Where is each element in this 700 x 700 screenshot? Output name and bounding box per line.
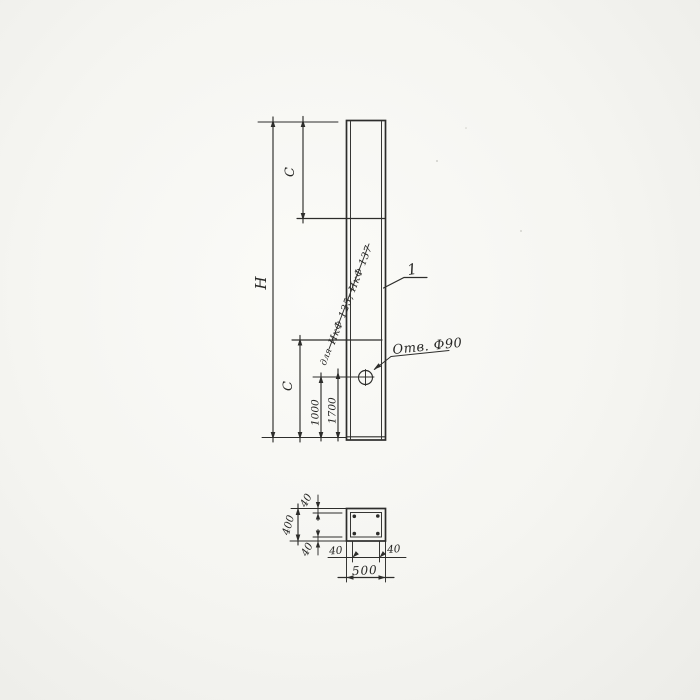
dim-label-400: 400 [280,514,297,538]
arrowhead [336,372,341,380]
rebar-dot [353,532,357,536]
arrowhead [316,531,320,538]
arrowhead [271,120,276,128]
arrowhead [380,551,386,557]
dim-label-500: 500 [351,563,378,578]
scan-speck [465,127,467,129]
arrowhead [316,502,320,509]
arrowhead [316,541,320,548]
dim-label-C-bottom: C [281,381,296,391]
arrowhead [336,432,341,440]
dim-label-cover-bottom: 40 [298,541,315,560]
column-drawing: H C C 1000 1700 ИкФ 125; ИкФ 137 для Отв… [0,0,700,700]
rebar-dot [353,515,357,519]
dim-label-H: H [252,276,270,291]
arrowhead [353,551,359,557]
dim-label-cover-right: 40 [386,543,401,556]
dim-label-1000: 1000 [310,399,322,426]
dim-label-C-top: C [283,167,298,177]
item-leader-line [384,278,428,289]
section-outline [347,509,386,542]
arrowhead [298,432,303,440]
arrowhead [319,432,324,440]
dim-label-cover-top: 40 [297,492,314,511]
rebar-dot [376,532,380,536]
dim-label-cover-left: 40 [328,545,343,558]
hole-callout-text: Отв. Ф90 [392,336,463,358]
note-for-text: для [319,347,335,367]
drawing-sheet: H C C 1000 1700 ИкФ 125; ИкФ 137 для Отв… [0,0,700,700]
arrowhead [301,213,306,221]
scan-speck [436,160,438,162]
arrowhead [271,432,276,440]
arrowhead [298,338,303,346]
section-view: 400 40 40 40 40 500 [280,492,406,582]
elevation-view: H C C 1000 1700 ИкФ 125; ИкФ 137 для Отв… [252,117,463,443]
arrowhead [374,363,382,370]
arrowhead [379,575,386,580]
arrowhead [301,120,306,128]
scan-speck [520,230,522,232]
dim-label-1700: 1700 [327,397,339,424]
rebar-dot [376,514,380,518]
item-number-text: 1 [406,260,418,279]
arrowhead [316,513,320,520]
